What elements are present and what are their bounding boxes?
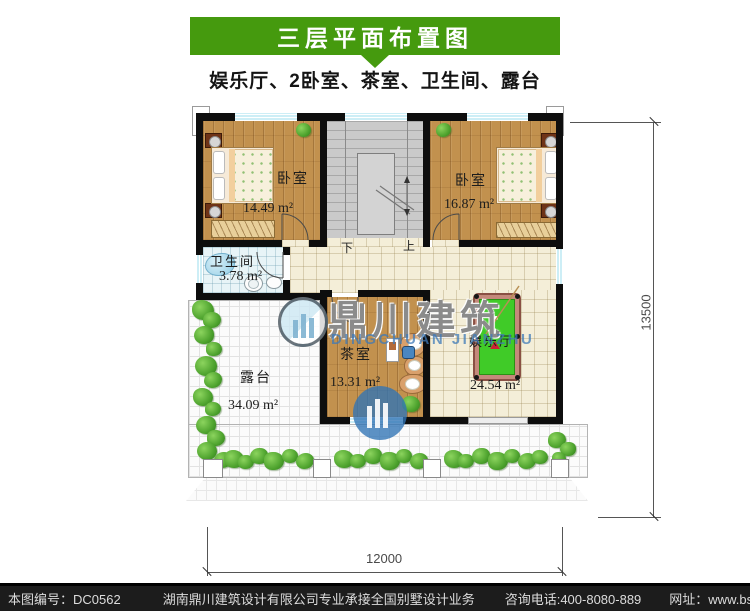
footer-phone: 咨询电话:400-8080-889 [505, 589, 642, 608]
floor-plan-page: 三层平面布置图 娱乐厅、2卧室、茶室、卫生间、露台 [0, 0, 750, 611]
dimension-extension [562, 527, 563, 576]
dimension-height: 13500 [639, 294, 654, 330]
footer-company: 湖南鼎川建筑设计有限公司专业承接全国别墅设计业务 [163, 589, 475, 608]
stairs-up-label: 上 [403, 237, 415, 254]
room-area-entertainment: 24.54 m² [470, 378, 520, 394]
room-label-bedroom-right: 卧室 [455, 170, 487, 190]
room-area-bathroom: 3.78 m² [219, 269, 262, 285]
dimension-width: 12000 [366, 551, 402, 566]
room-label-entertainment: 娱乐厅 [469, 331, 514, 350]
room-label-bedroom-left: 卧室 [277, 168, 309, 188]
dimension-extension [570, 122, 661, 123]
room-label-terrace: 露台 [240, 367, 272, 387]
stairs-down-label: 下 [341, 239, 353, 256]
room-area-bedroom-right: 16.87 m² [444, 197, 494, 213]
dimension-extension [207, 527, 208, 576]
room-area-terrace: 34.09 m² [228, 398, 278, 414]
dimension-line-horizontal [207, 572, 562, 573]
dimension-extension [598, 517, 661, 518]
room-label-bathroom: 卫生间 [210, 251, 255, 270]
room-area-bedroom-left: 14.49 m² [243, 201, 293, 217]
room-label-tea-room: 茶室 [340, 344, 372, 364]
room-area-tea-room: 13.31 m² [330, 375, 380, 391]
footer-drawing-code: 本图编号：DC0562 [8, 589, 121, 608]
door-and-stair-annotations [0, 0, 750, 611]
footer-bar: 本图编号：DC0562 湖南鼎川建筑设计有限公司专业承接全国别墅设计业务 咨询电… [0, 583, 750, 611]
footer-website: 网址：www.bstzcs.com [669, 589, 750, 608]
